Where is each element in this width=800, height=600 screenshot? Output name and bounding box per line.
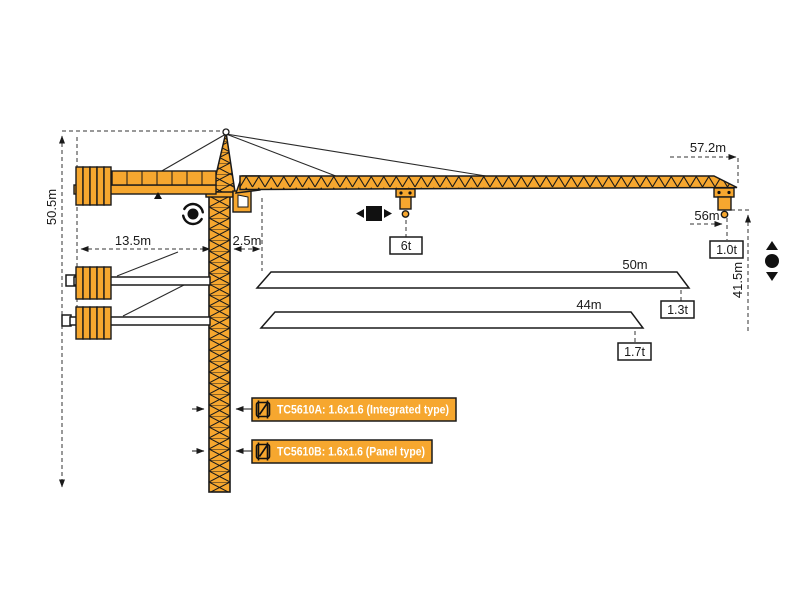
hoist-up-down-icon bbox=[765, 241, 779, 281]
variant44-tie-bar bbox=[123, 285, 184, 316]
label-a-text: TC5610A: 1.6x1.6 (Integrated type) bbox=[277, 405, 449, 417]
mast-section-label-a: TC5610A: 1.6x1.6 (Integrated type) bbox=[192, 398, 456, 421]
counter-jib-tie-bar bbox=[160, 134, 226, 172]
hook-height-label: 41.5m bbox=[730, 262, 745, 298]
hook-mid bbox=[402, 211, 408, 217]
crane-structure bbox=[62, 129, 737, 492]
slewing-rotation-icon bbox=[183, 204, 203, 224]
rear-offset-label: 2.5m bbox=[233, 233, 262, 248]
trolley-travel-icon bbox=[356, 206, 392, 221]
jib-tie-bar-1 bbox=[226, 134, 341, 178]
counter-jib-walkway bbox=[112, 171, 216, 185]
crane-diagram-page: 6t 1.0t 1.3t 1.7t 50.5m 13.5m 2.5m 57.2m… bbox=[0, 0, 800, 600]
max-radius-label: 57.2m bbox=[690, 140, 726, 155]
tower-mast bbox=[209, 196, 230, 492]
tip-load-main-value: 1.0t bbox=[716, 243, 737, 257]
cab-window bbox=[238, 195, 248, 207]
crane-diagram-canvas: 6t 1.0t 1.3t 1.7t 50.5m 13.5m 2.5m 57.2m… bbox=[0, 0, 800, 600]
tip-load-50m-value: 1.3t bbox=[667, 303, 688, 317]
counter-jib-variant-44 bbox=[62, 307, 210, 339]
counter-jib-variant-50 bbox=[66, 267, 210, 299]
apex-pin bbox=[223, 129, 229, 135]
counterweight-stack-main bbox=[76, 167, 111, 205]
total-height-label: 50.5m bbox=[44, 189, 59, 225]
jib-tie-bar-2 bbox=[226, 134, 492, 177]
label-b-text: TC5610B: 1.6x1.6 (Panel type) bbox=[277, 447, 425, 459]
variant50-tie-bar bbox=[117, 252, 178, 276]
main-jib bbox=[240, 176, 737, 190]
load-boxes: 6t 1.0t 1.3t 1.7t bbox=[390, 237, 743, 360]
jib-44m-label: 44m bbox=[576, 297, 601, 312]
trolley-mid bbox=[396, 189, 415, 217]
jib-50m-label: 50m bbox=[622, 257, 647, 272]
tip-load-44m-value: 1.7t bbox=[624, 345, 645, 359]
max-load-value: 6t bbox=[401, 239, 412, 253]
jib-outline-44m bbox=[261, 312, 643, 328]
counter-radius-label: 13.5m bbox=[115, 233, 151, 248]
hook-tip bbox=[721, 211, 727, 217]
mast-section-icon-b bbox=[257, 443, 270, 461]
jib-outline-50m bbox=[257, 272, 689, 288]
tip-radius-label: 56m bbox=[694, 208, 719, 223]
mast-section-icon-a bbox=[257, 401, 270, 419]
